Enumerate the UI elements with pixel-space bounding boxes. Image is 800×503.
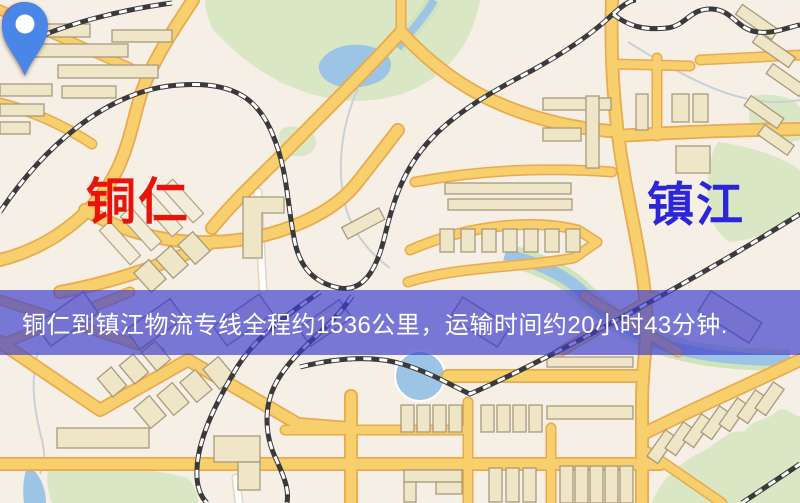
- route-info-text: 铜仁到镇江物流专线全程约1536公里，运输时间约20小时43分钟.: [0, 305, 728, 340]
- destination-city-label: 镇江: [647, 181, 745, 228]
- origin-city-label: 铜仁: [86, 177, 190, 227]
- map-view[interactable]: 铜仁到镇江物流专线全程约1536公里，运输时间约20小时43分钟. 铜仁 镇江: [0, 0, 800, 503]
- map-canvas[interactable]: [0, 0, 800, 503]
- destination-pin-icon[interactable]: [0, 0, 50, 78]
- route-info-banner: 铜仁到镇江物流专线全程约1536公里，运输时间约20小时43分钟.: [0, 290, 800, 355]
